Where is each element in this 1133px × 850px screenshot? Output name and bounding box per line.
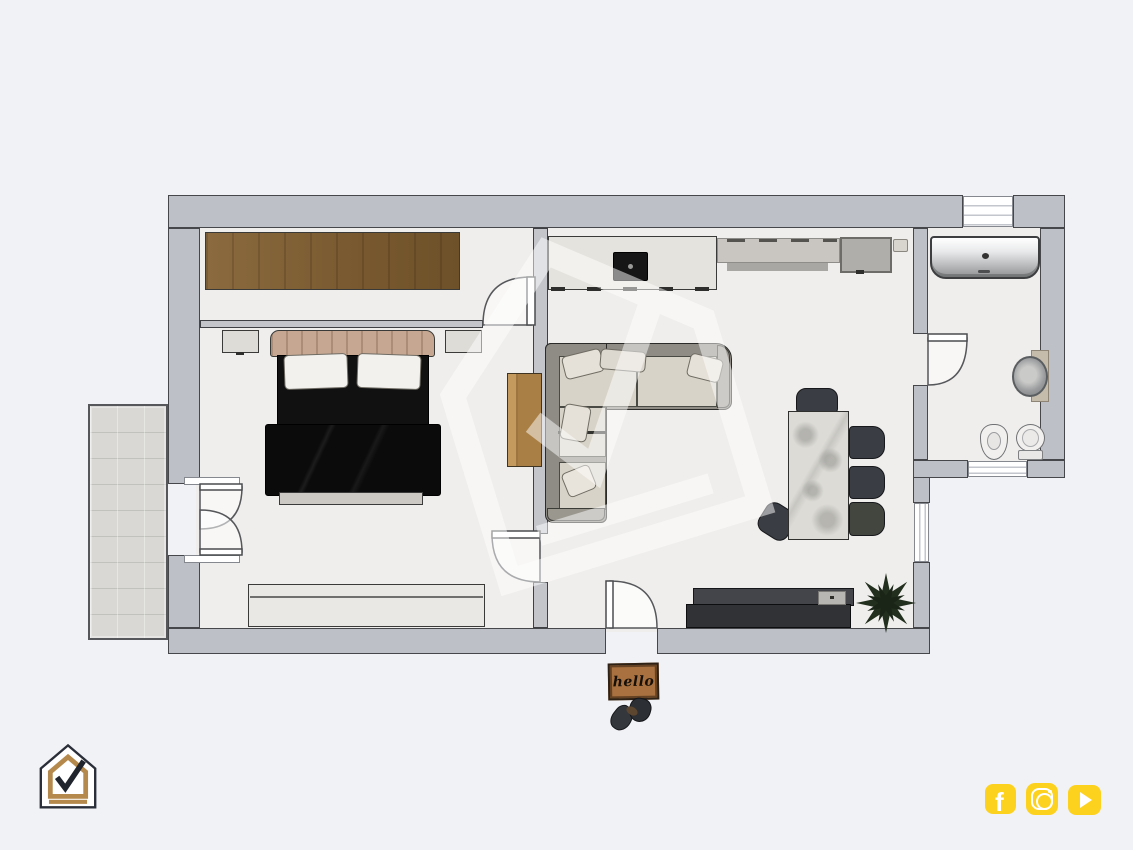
bathtub-drain: [982, 253, 989, 259]
logo-gold-bar: [49, 800, 87, 804]
bed-pillow-right: [356, 353, 421, 390]
balcony: [88, 404, 168, 640]
floor-plan-page: { "page": { "background_color": "#f1f2f6…: [0, 0, 1133, 850]
dining-chair-top: [796, 388, 838, 413]
doormat: hello: [608, 663, 660, 701]
washing-machine-drum: [1012, 356, 1048, 397]
wall-bathroom-east: [1040, 228, 1065, 460]
wall-bathroom-south-right: [1027, 460, 1065, 478]
shoes: [612, 699, 654, 733]
bathroom-south-window: [968, 461, 1027, 477]
instagram-icon[interactable]: [1026, 783, 1058, 815]
bedroom-dresser: [248, 584, 485, 627]
kitchen-counter-handles: [551, 287, 715, 291]
wall-closet-divider: [200, 320, 483, 328]
wall-switch: [893, 239, 908, 252]
facebook-glyph: f: [995, 787, 1004, 817]
bedroom-desk: [507, 373, 542, 467]
wall-left-lower: [168, 555, 200, 628]
dining-chair-right-2: [849, 466, 885, 499]
bed-pillow-left: [283, 353, 348, 390]
counter-shadow-strip: [727, 263, 828, 271]
youtube-icon[interactable]: [1068, 785, 1101, 815]
dining-island: [788, 411, 849, 540]
wall-top-right: [1013, 195, 1065, 228]
toilet-seat: [1022, 429, 1039, 447]
wardrobe: [205, 232, 460, 290]
fridge-handle: [856, 270, 864, 274]
sideboard-device-dot: [830, 596, 834, 599]
house-checkmark-logo: [34, 742, 102, 810]
balcony-door-jamb-bottom: [184, 555, 240, 563]
plant: [855, 572, 917, 634]
top-window: [963, 196, 1013, 227]
bed-blanket: [265, 424, 441, 496]
fridge-cabinet: [840, 237, 892, 273]
wall-bathroom-west-upper: [913, 228, 928, 334]
nightstand-right: [445, 330, 482, 353]
wall-bedroom-living-lower: [533, 582, 548, 628]
wall-bathroom-south-left: [913, 460, 968, 478]
bedroom-dresser-top-edge: [250, 596, 483, 598]
instagram-dot: [1048, 790, 1051, 793]
instagram-lens: [1036, 793, 1053, 810]
wall-bottom-left: [168, 628, 606, 654]
dining-chair-right-1: [849, 426, 885, 459]
bed-headboard: [270, 330, 435, 357]
wall-bathroom-west-lower: [913, 385, 928, 460]
sofa-armrest-bottom: [547, 508, 605, 521]
youtube-play-triangle: [1080, 792, 1092, 808]
bed-foot-bench: [279, 492, 423, 505]
wall-top-left: [168, 195, 963, 228]
nightstand-left: [222, 330, 259, 353]
upper-cabinet-handles: [727, 239, 837, 242]
toilet-tank: [1018, 450, 1043, 460]
bidet-basin: [987, 432, 1001, 450]
cooktop-knob: [628, 264, 633, 269]
sofa-back-pillow: [599, 348, 647, 373]
nightstand-left-handle: [236, 352, 244, 355]
tv-sideboard-front: [686, 604, 851, 628]
dining-chair-right-3: [849, 502, 885, 536]
facebook-icon[interactable]: f: [985, 784, 1016, 814]
balcony-door-jamb-top: [184, 477, 240, 485]
east-window: [914, 503, 929, 562]
bathtub-overflow: [978, 270, 990, 273]
wall-left-upper: [168, 228, 200, 484]
doormat-text: hello: [613, 673, 655, 690]
